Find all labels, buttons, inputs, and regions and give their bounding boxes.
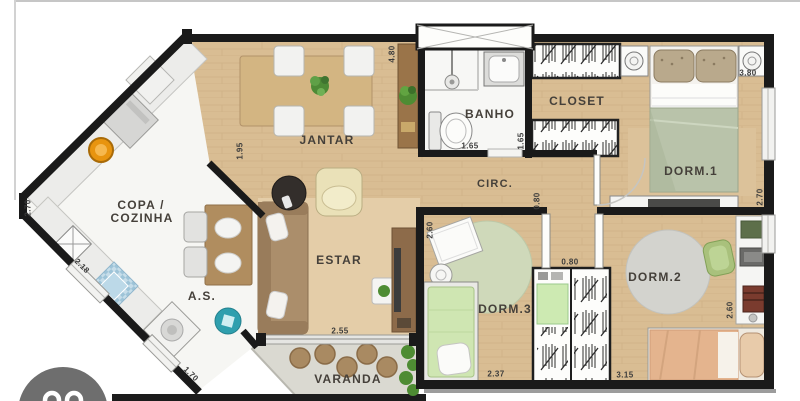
tv [394, 248, 401, 312]
dim-dorm1-width: 3.80 [739, 69, 756, 78]
room-label-jantar: JANTAR [300, 133, 355, 147]
toilet [429, 112, 441, 150]
room-label-as: A.S. [188, 289, 216, 303]
room-label-banho: BANHO [465, 107, 515, 121]
dim-cozinha-left: 2.70 [24, 199, 33, 216]
pillow [740, 333, 764, 377]
dim-jantar-left: 1.95 [236, 142, 245, 159]
kitchen-chair [184, 212, 207, 242]
dim-dorm3-height: 2.60 [426, 221, 435, 238]
kitchen-chair [184, 247, 207, 277]
room-label-copa-line2: COZINHA [110, 211, 173, 225]
watermark-logo [18, 367, 108, 401]
door-leaf-dorm2 [595, 214, 603, 268]
room-label-copa-line1: COPA / [117, 198, 164, 212]
dim-dorm2-width: 3.15 [616, 371, 633, 380]
room-label-dorm2: DORM.2 [628, 270, 682, 284]
dim-dorm1-height: 2.70 [756, 188, 765, 205]
room-label-circ: CIRC. [477, 178, 513, 190]
door-leaf-dorm3 [542, 214, 550, 268]
dim-circ-door: 0.80 [533, 192, 542, 209]
dim-wardrobe-width: 0.80 [561, 258, 578, 267]
dim-estar-width: 2.55 [331, 327, 348, 336]
door-leaf-dorm1 [594, 155, 600, 205]
pillow [436, 342, 472, 376]
room-label-dorm1: DORM.1 [664, 164, 718, 178]
room-label-estar: ESTAR [316, 253, 362, 267]
room-label-dorm3: DORM.3 [478, 302, 532, 316]
floorplan: JANTAR COPA / COZINHA A.S. ESTAR VARANDA… [0, 0, 800, 401]
dim-dorm2-height: 2.60 [726, 301, 735, 318]
dim-banho-height: 1.65 [517, 132, 526, 149]
dim-banho-width: 1.65 [461, 142, 478, 151]
dim-jantar-depth: 4.80 [388, 45, 397, 62]
bathroom-door [488, 149, 522, 157]
room-label-varanda: VARANDA [314, 372, 382, 386]
room-label-closet: CLOSET [549, 94, 605, 108]
dim-dorm3-width: 2.37 [487, 370, 504, 379]
